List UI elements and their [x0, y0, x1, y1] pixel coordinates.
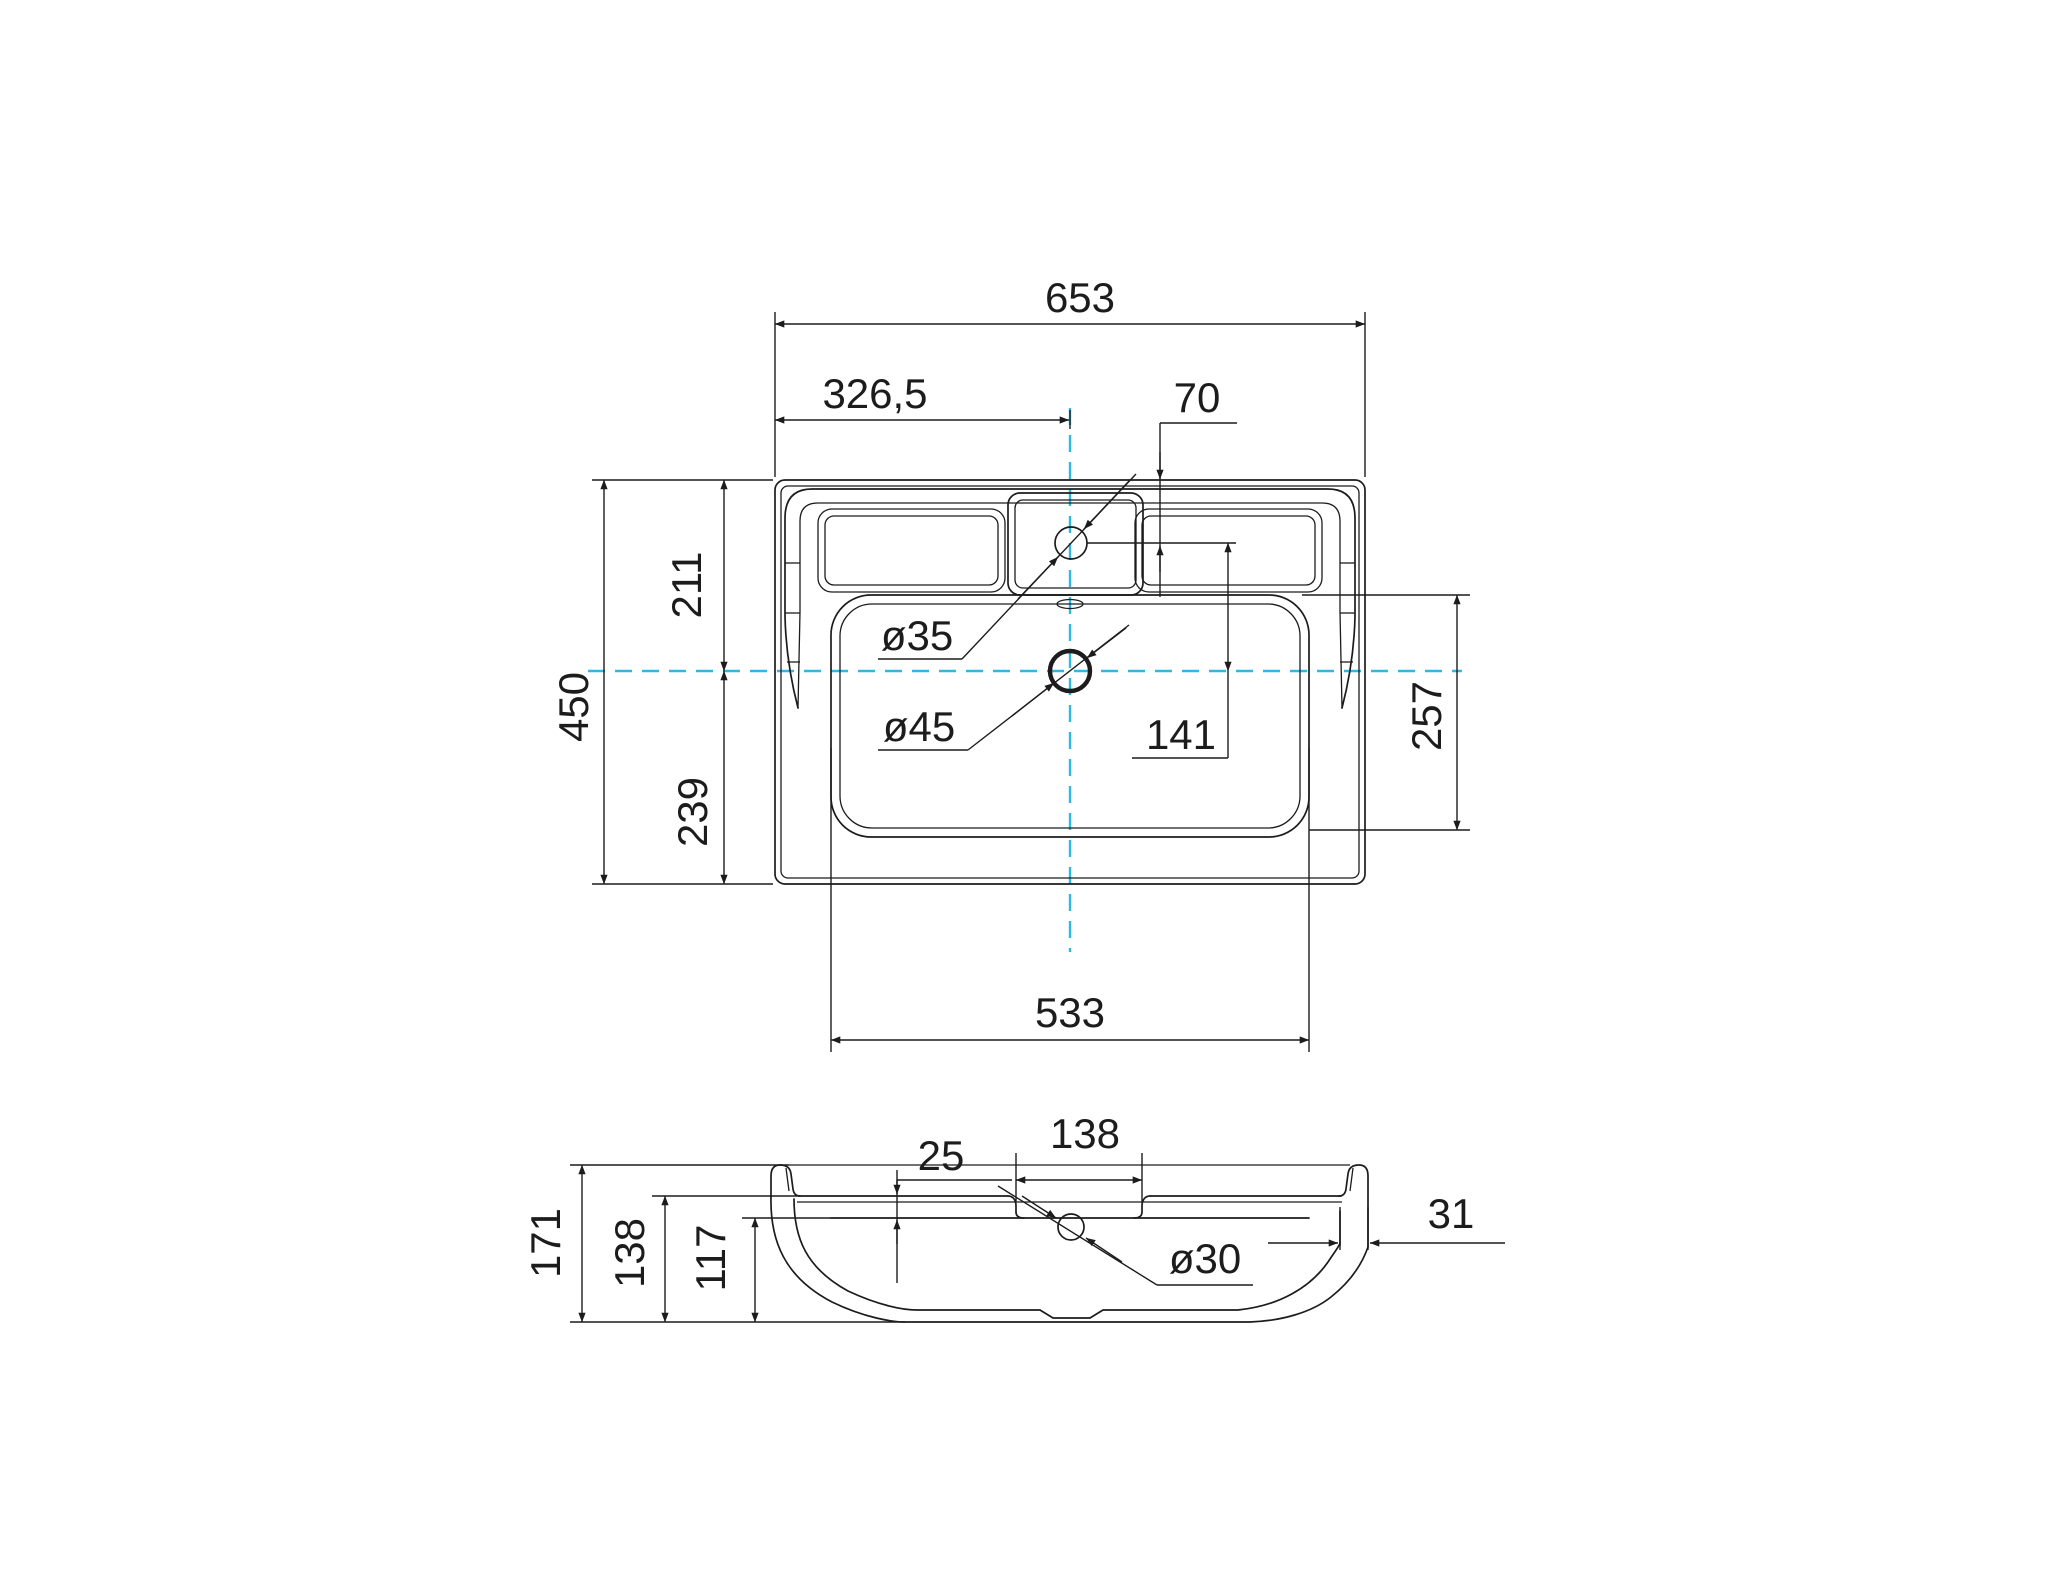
- arrow-d35-out: [1084, 480, 1130, 529]
- dim-faucet-to-centerline: 141: [1146, 711, 1216, 758]
- dim-faucet-setback: 70: [1174, 374, 1221, 421]
- washbasin-drawing: 653 326,5 70 450 211 239 533 257: [0, 0, 2048, 1583]
- inner-bowl-surface: [794, 1199, 1340, 1318]
- faucet-recess-inner: [1015, 500, 1136, 588]
- right-lip: [1339, 1165, 1368, 1247]
- dim-overall-height: 171: [522, 1208, 569, 1278]
- arrow-d45-in: [1012, 683, 1054, 716]
- faucet-recess-outer: [1008, 493, 1143, 595]
- dim-center-offset: 326,5: [822, 370, 927, 417]
- drawing-page: 653 326,5 70 450 211 239 533 257: [0, 0, 2048, 1583]
- dim-overall-depth: 450: [550, 672, 597, 742]
- dim-bowl-depth: 257: [1403, 681, 1450, 751]
- dim-overall-width: 653: [1045, 274, 1115, 321]
- dim-bowl-width: 533: [1035, 989, 1105, 1036]
- right-lip-inner-line: [1350, 1168, 1353, 1191]
- leader-d30: [998, 1186, 1157, 1285]
- dim-faucet-hole: ø35: [881, 612, 953, 659]
- arrow-d45-out: [1087, 628, 1126, 658]
- top-view: [588, 408, 1462, 952]
- arrow-d30-upper: [1022, 1196, 1056, 1218]
- dim-back-section: 211: [663, 552, 710, 619]
- left-lip-inner-line: [786, 1168, 789, 1191]
- top-view-dimensions: 653 326,5 70 450 211 239 533 257: [550, 274, 1470, 1052]
- dim-recess-depth: 25: [918, 1132, 965, 1179]
- section-view-dimensions: 171 138 117 25 138 ø30 31: [522, 1110, 1505, 1322]
- left-deck-pocket-inner: [825, 516, 998, 585]
- outer-shell: [771, 1197, 1368, 1322]
- dim-inner-height: 117: [687, 1225, 734, 1292]
- dim-deck-height: 138: [606, 1218, 653, 1288]
- dim-rim-wall: 31: [1428, 1190, 1475, 1237]
- dim-drain-hole: ø45: [883, 703, 955, 750]
- left-lip: [771, 1165, 800, 1197]
- dim-front-section: 239: [669, 777, 716, 847]
- dim-hole-diameter: ø30: [1169, 1235, 1241, 1282]
- left-deck-pocket-outer: [818, 509, 1005, 592]
- dim-recess-width: 138: [1050, 1110, 1120, 1157]
- arrow-d35-in: [1018, 557, 1058, 599]
- arrow-d30-lower: [1086, 1238, 1122, 1262]
